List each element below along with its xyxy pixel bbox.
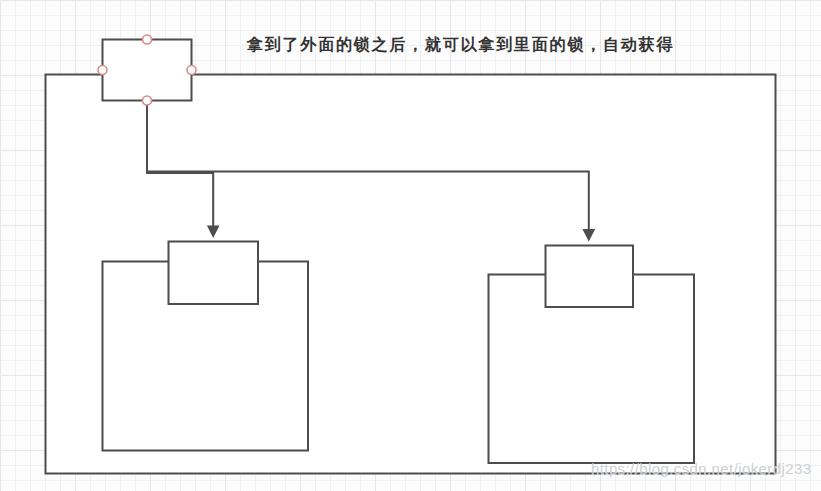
- watermark-url: https://blog.csdn.net/jokerdj233: [591, 460, 811, 477]
- left-inner-lock-box[interactable]: [169, 242, 259, 305]
- connection-point-top-icon[interactable]: [143, 35, 152, 44]
- diagram-canvas: 拿到了外面的锁之后，就可以拿到里面的锁，自动获得 https://blog.cs…: [0, 0, 821, 491]
- connection-point-left-icon[interactable]: [98, 66, 107, 75]
- right-inner-lock-box[interactable]: [546, 246, 634, 308]
- diagram-caption: 拿到了外面的锁之后，就可以拿到里面的锁，自动获得: [247, 35, 674, 56]
- outer-lock-box[interactable]: [103, 40, 192, 101]
- connection-point-bottom-icon[interactable]: [143, 96, 152, 105]
- connection-point-right-icon[interactable]: [187, 66, 196, 75]
- diagram-shapes: [0, 0, 821, 491]
